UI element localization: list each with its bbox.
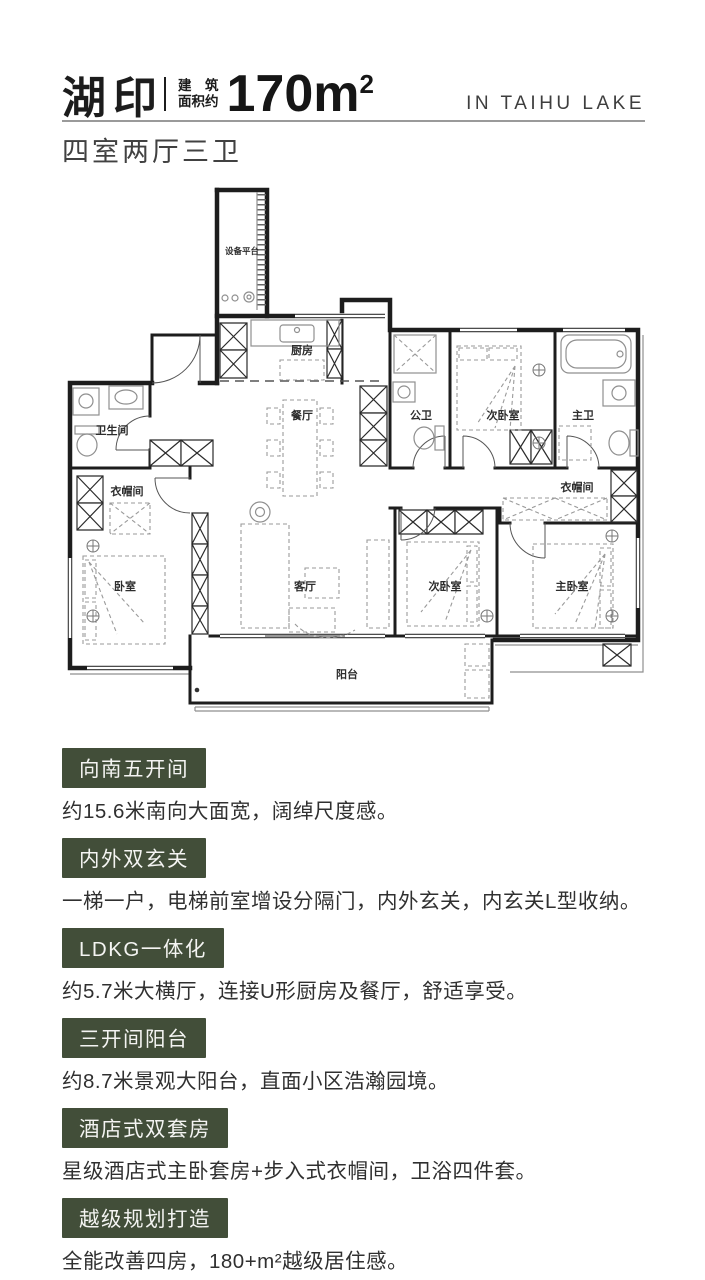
area-label: 建 筑面积约 <box>178 78 219 110</box>
feature-desc-2: 一梯一户，电梯前室增设分隔门，内外玄关，内玄关L型收纳。 <box>62 890 647 914</box>
room-label-living: 客厅 <box>293 579 316 593</box>
layout-subtitle: 四室两厅三卫 <box>62 130 242 169</box>
feature-section-2: 内外双玄关 一梯一户，电梯前室增设分隔门，内外玄关，内玄关L型收纳。 <box>62 838 647 914</box>
project-name: 湖印 <box>62 62 164 126</box>
feature-section-1: 向南五开间 约15.6米南向大面宽，阔绰尺度感。 <box>62 748 647 824</box>
room-label-dining: 餐厅 <box>290 408 313 422</box>
room-label-equipment-platform: 设备平台 <box>225 246 260 256</box>
feature-title-5: 酒店式双套房 <box>62 1108 228 1148</box>
area-label-line1: 建 筑 <box>178 78 219 93</box>
area-label-line2: 面积约 <box>178 94 219 109</box>
feature-desc-4: 约8.7米景观大阳台，直面小区浩瀚园境。 <box>62 1070 647 1094</box>
area-value: 170m2 <box>227 64 374 124</box>
room-label-bathroom: 卫生间 <box>96 423 129 437</box>
feature-desc-5: 星级酒店式主卧套房+步入式衣帽间，卫浴四件套。 <box>62 1160 647 1184</box>
room-label-bedroom2-top: 次卧室 <box>487 408 520 422</box>
feature-title-1: 向南五开间 <box>62 748 206 788</box>
feature-title-2: 内外双玄关 <box>62 838 206 878</box>
room-label-cloakroom-right: 衣帽间 <box>561 480 594 494</box>
feature-desc-1: 约15.6米南向大面宽，阔绰尺度感。 <box>62 800 647 824</box>
feature-section-4: 三开间阳台 约8.7米景观大阳台，直面小区浩瀚园境。 <box>62 1018 647 1094</box>
header-rule <box>62 120 645 122</box>
floorplan-drawing: 设备平台 厨房 餐厅 公卫 次卧室 主卫 卫生间 衣帽间 卧室 客厅 次卧室 主… <box>55 178 655 738</box>
area-superscript: 2 <box>360 69 374 99</box>
room-label-cloakroom-left: 衣帽间 <box>111 484 144 498</box>
feature-section-5: 酒店式双套房 星级酒店式主卧套房+步入式衣帽间，卫浴四件套。 <box>62 1108 647 1184</box>
header-divider <box>164 77 166 111</box>
feature-title-6: 越级规划打造 <box>62 1198 228 1238</box>
feature-title-3: LDKG一体化 <box>62 928 224 968</box>
room-label-kitchen: 厨房 <box>291 343 313 357</box>
feature-desc-3: 约5.7米大横厅，连接U形厨房及餐厅，舒适享受。 <box>62 980 647 1004</box>
feature-list: 向南五开间 约15.6米南向大面宽，阔绰尺度感。 内外双玄关 一梯一户，电梯前室… <box>62 748 647 1280</box>
room-label-master-bedroom: 主卧室 <box>556 579 589 593</box>
feature-section-3: LDKG一体化 约5.7米大横厅，连接U形厨房及餐厅，舒适享受。 <box>62 928 647 1004</box>
room-label-bedroom2-bottom: 次卧室 <box>429 579 462 593</box>
feature-section-6: 越级规划打造 全能改善四房，180+m²越级居住感。 <box>62 1198 647 1274</box>
room-label-guest-bath: 公卫 <box>410 409 432 422</box>
feature-title-4: 三开间阳台 <box>62 1018 206 1058</box>
header: 湖印建 筑面积约170m2 <box>62 62 374 118</box>
room-label-balcony: 阳台 <box>336 667 358 681</box>
room-label-master-bath: 主卫 <box>572 408 594 422</box>
tagline-en: IN TAIHU LAKE <box>466 93 645 115</box>
page: 湖印建 筑面积约170m2 IN TAIHU LAKE 四室两厅三卫 <box>0 0 705 1280</box>
feature-desc-6: 全能改善四房，180+m²越级居住感。 <box>62 1250 647 1274</box>
room-label-bedroom-left: 卧室 <box>114 579 136 593</box>
